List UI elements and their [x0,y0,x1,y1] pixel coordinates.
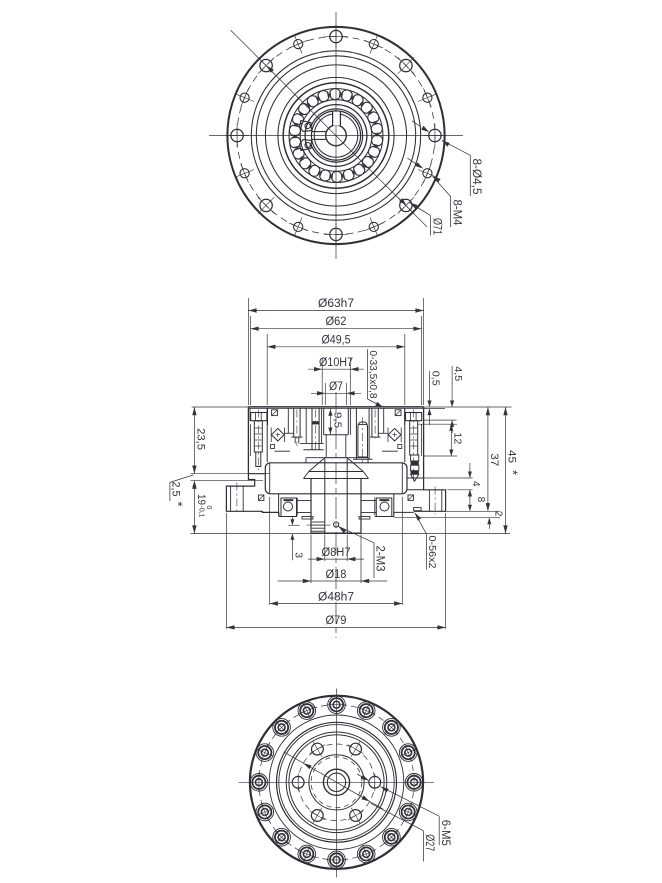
svg-text:Ø63h7: Ø63h7 [318,298,354,310]
svg-text:Ø8H7: Ø8H7 [322,547,351,559]
svg-text:*: * [506,470,521,475]
svg-text:3: 3 [293,552,305,558]
svg-text:4,5: 4,5 [452,366,464,381]
svg-text:23,5: 23,5 [194,428,206,450]
svg-text:Ø71: Ø71 [430,218,442,235]
svg-text:Ø79: Ø79 [326,615,347,627]
svg-text:2-M3: 2-M3 [374,546,386,572]
svg-text:Ø10H7: Ø10H7 [319,357,353,369]
svg-text:0-56x2: 0-56x2 [426,536,438,569]
svg-text:0,5: 0,5 [430,371,442,386]
svg-text:Ø18: Ø18 [326,569,347,581]
svg-text:Ø7: Ø7 [329,381,343,393]
svg-text:8-Ø4,5: 8-Ø4,5 [470,159,482,195]
svg-text:Ø48h7: Ø48h7 [318,591,354,603]
svg-text:2,5: 2,5 [170,482,182,497]
svg-text:12: 12 [452,432,464,444]
svg-text:8-M4: 8-M4 [450,200,462,227]
svg-text:Ø49,5: Ø49,5 [322,334,351,346]
svg-text:*: * [171,502,186,507]
svg-text:-0,1: -0,1 [198,506,205,518]
svg-text:9,5: 9,5 [332,412,344,428]
svg-text:Ø62: Ø62 [326,316,347,328]
svg-text:Ø27: Ø27 [423,834,435,851]
svg-text:8: 8 [475,497,486,503]
svg-text:45: 45 [506,450,518,463]
svg-text:4: 4 [470,481,481,487]
svg-text:2: 2 [493,511,504,517]
svg-text:6-M5: 6-M5 [439,820,451,846]
svg-text:0-33,5x0,8: 0-33,5x0,8 [367,351,379,399]
svg-text:37: 37 [488,453,500,466]
svg-text:0: 0 [205,506,212,510]
svg-text:19: 19 [195,494,207,505]
